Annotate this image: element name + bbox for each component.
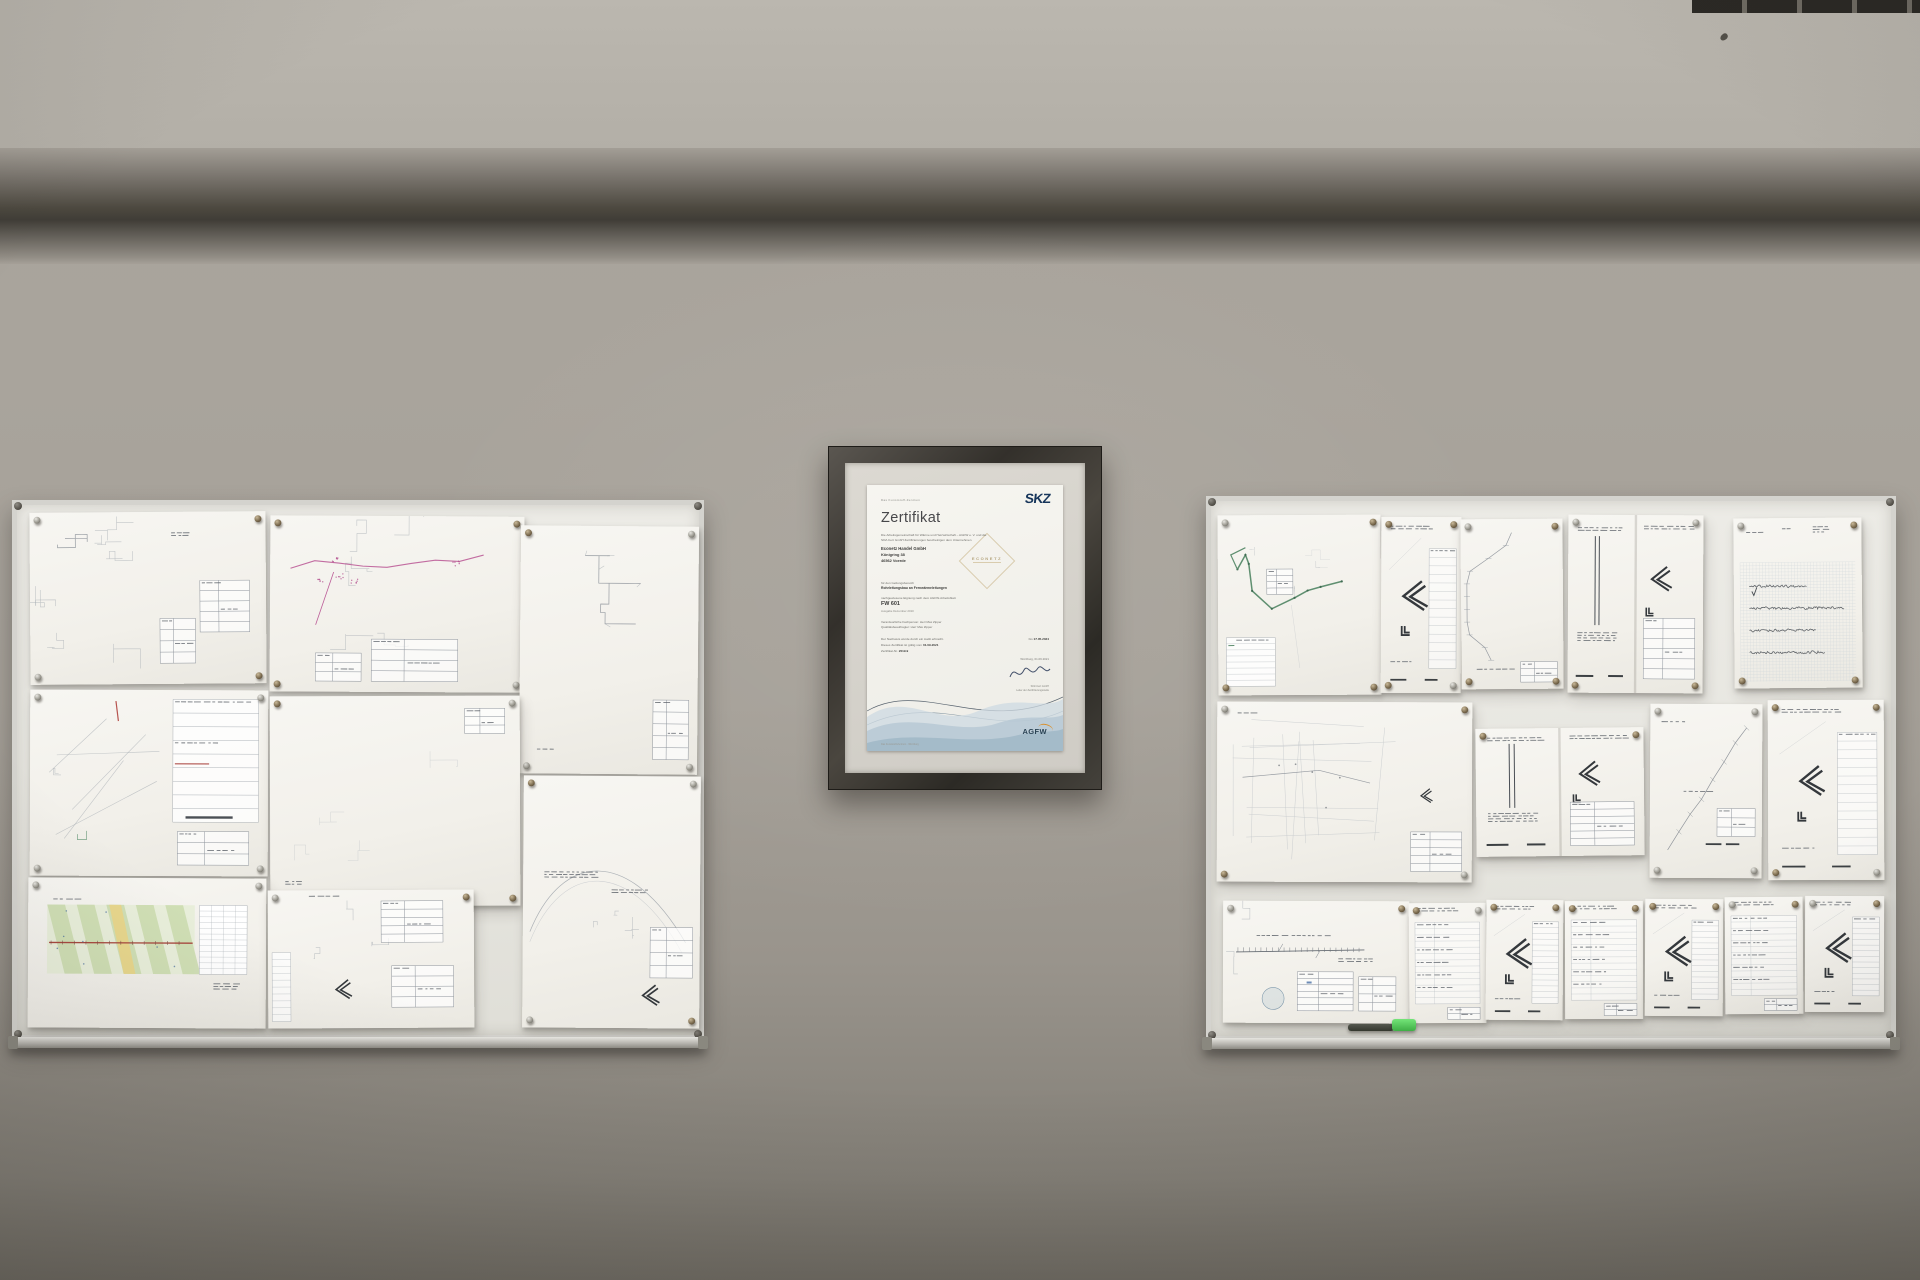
certificate-number: 2019.9: [899, 649, 908, 653]
push-pin: [1850, 521, 1857, 528]
push-pin: [257, 694, 264, 701]
push-pin: [1729, 901, 1736, 908]
drawing-graphic: [30, 690, 269, 877]
push-pin: [1221, 706, 1228, 713]
certificate-number-line: Zertifikat-Nr. 2019.9: [881, 649, 908, 653]
push-pin: [1466, 678, 1473, 685]
drawing-graphic: [270, 515, 525, 692]
push-pin: [513, 521, 520, 528]
push-pin: [1654, 708, 1661, 715]
push-pin: [1551, 523, 1558, 530]
drawing-graphic: [1218, 515, 1382, 696]
certificate-mat: Das Kunststoff-Zentrum SKZ Zertifikat Di…: [845, 463, 1085, 773]
drawing-graphic: [1645, 899, 1724, 1016]
pinned-drawing-diagonal-route-1: [1650, 704, 1763, 879]
push-pin: [1490, 904, 1497, 911]
pinned-drawing-faint-route-portrait: [1460, 519, 1563, 690]
push-pin: [688, 1018, 695, 1025]
valid-label: Dieses Zertifikat ist gültig vom: [881, 643, 922, 647]
push-pin: [274, 700, 281, 707]
push-pin: [1712, 903, 1719, 910]
certificate-intro-2: SKZ-Cert GmbH Zertifizierungen bescheini…: [881, 538, 971, 542]
push-pin: [1572, 519, 1579, 526]
certificate-title: Zertifikat: [881, 510, 941, 526]
push-pin: [1809, 900, 1816, 907]
drawing-graphic: [1486, 900, 1564, 1021]
push-pin: [33, 517, 40, 524]
push-pin: [1751, 867, 1758, 874]
push-pin: [528, 779, 535, 786]
push-pin: [1398, 905, 1405, 912]
push-pin: [509, 700, 516, 707]
watermark-text: ECONETZ: [961, 556, 1013, 561]
contact-line-2: Qualitätsbeauftragter: Herr Max Zipper: [881, 625, 932, 629]
certificate-paper: Das Kunststoff-Zentrum SKZ Zertifikat Di…: [867, 485, 1063, 751]
left-board-pen-tray: [10, 1037, 706, 1048]
pinned-drawing-pipeline-plan-long: [1223, 901, 1409, 1024]
push-pin: [513, 682, 520, 689]
push-pin: [1450, 682, 1457, 689]
push-pin: [1461, 706, 1468, 713]
push-pin: [1227, 905, 1234, 912]
pinned-drawing-elbow-detail-4: [1805, 896, 1884, 1012]
frame-screw: [1886, 498, 1894, 506]
pinned-drawing-site-plan-legend: [30, 690, 269, 877]
push-pin: [1632, 731, 1639, 738]
drawing-graphic: [1733, 517, 1862, 688]
push-pin: [509, 895, 516, 902]
ceiling-beam-shadow: [0, 148, 1920, 264]
push-pin: [257, 865, 264, 872]
push-pin: [1792, 901, 1799, 908]
pinned-drawing-elbow-detail-3: [1645, 899, 1724, 1016]
push-pin: [1739, 677, 1746, 684]
scope-text: Rohrleitungsbau an Fernwärmeleitungen: [881, 586, 947, 590]
push-pin: [1475, 907, 1482, 914]
signer-role: Leiter der Zertifizierungsstelle: [1016, 689, 1049, 692]
standard-edition: Ausgabe Dezember 2010: [881, 609, 914, 613]
company-street: Königring 38: [881, 552, 905, 557]
push-pin: [1572, 682, 1579, 689]
push-pin: [1385, 682, 1392, 689]
push-pin: [1385, 521, 1392, 528]
pinned-drawing-city-grid-plan: [1217, 702, 1473, 883]
push-pin: [1552, 904, 1559, 911]
contact-line-1: Verantwortliche Fachperson: Herr Max Zip…: [881, 620, 942, 624]
pinned-drawing-elbow-detail-2: [1486, 900, 1564, 1021]
push-pin: [1873, 900, 1880, 907]
drawing-graphic: [519, 525, 699, 775]
push-pin: [1751, 708, 1758, 715]
pinned-drawing-schedule-sheet-1: [1409, 903, 1487, 1023]
right-board-pen-tray: [1204, 1038, 1898, 1049]
company-name: Econetz Handel GmbH: [881, 546, 926, 551]
audit-line: Der Nachweis wurde durch ein Audit erbra…: [881, 637, 944, 641]
ceiling-vent-strip: [1692, 0, 1920, 13]
pinned-drawing-calc-notes-grid: [1733, 517, 1862, 688]
certificate-intro-1: Die Arbeitsgemeinschaft für Wärme und He…: [881, 533, 986, 537]
push-pin: [1370, 684, 1377, 691]
drawing-graphic: [1768, 700, 1885, 880]
push-pin: [255, 883, 262, 890]
company-city: 46562 Voerde: [881, 558, 906, 563]
push-pin: [274, 680, 281, 687]
push-pin: [1772, 869, 1779, 876]
pinned-drawing-site-plan-pink-route: [270, 515, 525, 692]
frame-screw: [1208, 498, 1216, 506]
valid-from-date: 01.09.2021: [923, 643, 938, 647]
scope-label: für den Geltungsbereich: [881, 581, 914, 585]
left-pinboard: [12, 500, 704, 1040]
place-and-date: Würzburg, 01.09.2021: [1020, 657, 1049, 661]
drawing-graphic: [29, 511, 266, 685]
push-pin: [1461, 871, 1468, 878]
drawing-graphic: [1223, 901, 1409, 1024]
validity-line: Dieses Zertifikat ist gültig vom 01.09.2…: [881, 643, 938, 647]
push-pin: [274, 519, 281, 526]
photo-of-office-wall: Das Kunststoff-Zentrum SKZ Zertifikat Di…: [0, 0, 1920, 1280]
push-pin: [523, 762, 530, 769]
push-pin: [463, 893, 470, 900]
skz-tagline: Das Kunststoff-Zentrum: [881, 498, 920, 502]
drawing-graphic: [1725, 897, 1804, 1015]
push-pin: [525, 529, 532, 536]
pinned-drawing-network-plan-tall: [519, 525, 699, 775]
push-pin: [35, 674, 42, 681]
pinned-drawing-site-plan-top-left: [29, 511, 266, 685]
push-pin: [686, 764, 693, 771]
push-pin: [1772, 704, 1779, 711]
drawing-graphic: [1568, 515, 1704, 694]
push-pin: [1569, 905, 1576, 912]
push-pin: [690, 781, 697, 788]
drawing-graphic: [1217, 702, 1473, 883]
drawing-graphic: [1381, 517, 1462, 693]
push-pin: [1852, 676, 1859, 683]
certificate-footer: Das Kunststoff-Zentrum · Würzburg: [881, 743, 919, 746]
green-eraser: [1392, 1019, 1416, 1031]
push-pin: [1221, 871, 1228, 878]
pinned-drawing-green-route-plan: [1218, 515, 1382, 696]
frame-screw: [14, 502, 22, 510]
push-pin: [1413, 907, 1420, 914]
frame-screw: [694, 502, 702, 510]
push-pin: [1692, 682, 1699, 689]
standard-number: FW 601: [881, 601, 900, 607]
pinned-drawing-detail-sketch-sheet: [268, 889, 475, 1028]
pinned-drawing-booklet-detail-2: [1475, 727, 1644, 857]
drawing-graphic: [522, 775, 701, 1028]
push-pin: [1450, 521, 1457, 528]
push-pin: [1873, 869, 1880, 876]
right-pinboard: [1206, 496, 1896, 1041]
pinned-drawing-schedule-sheet-2: [1565, 901, 1643, 1019]
pinned-drawing-colored-route-map: [28, 877, 267, 1028]
valid-to-line: bis 17.05.2024: [1029, 637, 1049, 641]
push-pin: [1632, 905, 1639, 912]
drawing-graphic: [28, 877, 267, 1028]
push-pin: [32, 881, 39, 888]
push-pin: [526, 1016, 533, 1023]
push-pin: [688, 531, 695, 538]
drawing-graphic: [1650, 704, 1763, 879]
signature: [1007, 662, 1053, 684]
push-pin: [1222, 519, 1229, 526]
push-pin: [1222, 684, 1229, 691]
number-label: Zertifikat-Nr.: [881, 649, 898, 653]
push-pin: [1479, 733, 1486, 740]
push-pin: [1737, 522, 1744, 529]
certificate-frame: Das Kunststoff-Zentrum SKZ Zertifikat Di…: [828, 446, 1102, 790]
push-pin: [34, 865, 41, 872]
pinned-drawing-elbow-detail-1: [1381, 517, 1462, 693]
push-pin: [1692, 519, 1699, 526]
drawing-graphic: [1805, 896, 1884, 1012]
push-pin: [1553, 678, 1560, 685]
push-pin: [254, 515, 261, 522]
pinned-drawing-diagonal-route-elbow: [1768, 700, 1885, 880]
drawing-graphic: [1409, 903, 1487, 1023]
pinned-drawing-schedule-sheet-3: [1725, 897, 1804, 1015]
valid-to-label: bis: [1029, 637, 1033, 641]
drawing-graphic: [270, 696, 521, 907]
push-pin: [1464, 523, 1471, 530]
valid-to-date: 17.05.2024: [1034, 637, 1049, 641]
upper-wall: [0, 0, 1920, 150]
push-pin: [1873, 704, 1880, 711]
skz-logo: SKZ: [1024, 491, 1051, 506]
drawing-graphic: [1475, 727, 1644, 857]
basis-label: nachgewiesene Eignung nach dem AGFW-Arbe…: [881, 596, 956, 600]
whiteboard-marker: [1348, 1024, 1394, 1031]
push-pin: [272, 894, 279, 901]
pinned-drawing-arc-plan-sheet: [522, 775, 701, 1028]
push-pin: [1654, 867, 1661, 874]
pinned-drawing-site-plan-blank: [270, 696, 521, 907]
drawing-graphic: [268, 889, 475, 1028]
push-pin: [1649, 903, 1656, 910]
pinned-drawing-booklet-elbow-detail: [1568, 515, 1704, 694]
push-pin: [34, 694, 41, 701]
drawing-graphic: [1565, 901, 1643, 1019]
push-pin: [256, 672, 263, 679]
push-pin: [1370, 519, 1377, 526]
agfw-logo: AGFW: [1022, 727, 1047, 736]
drawing-graphic: [1460, 519, 1563, 690]
